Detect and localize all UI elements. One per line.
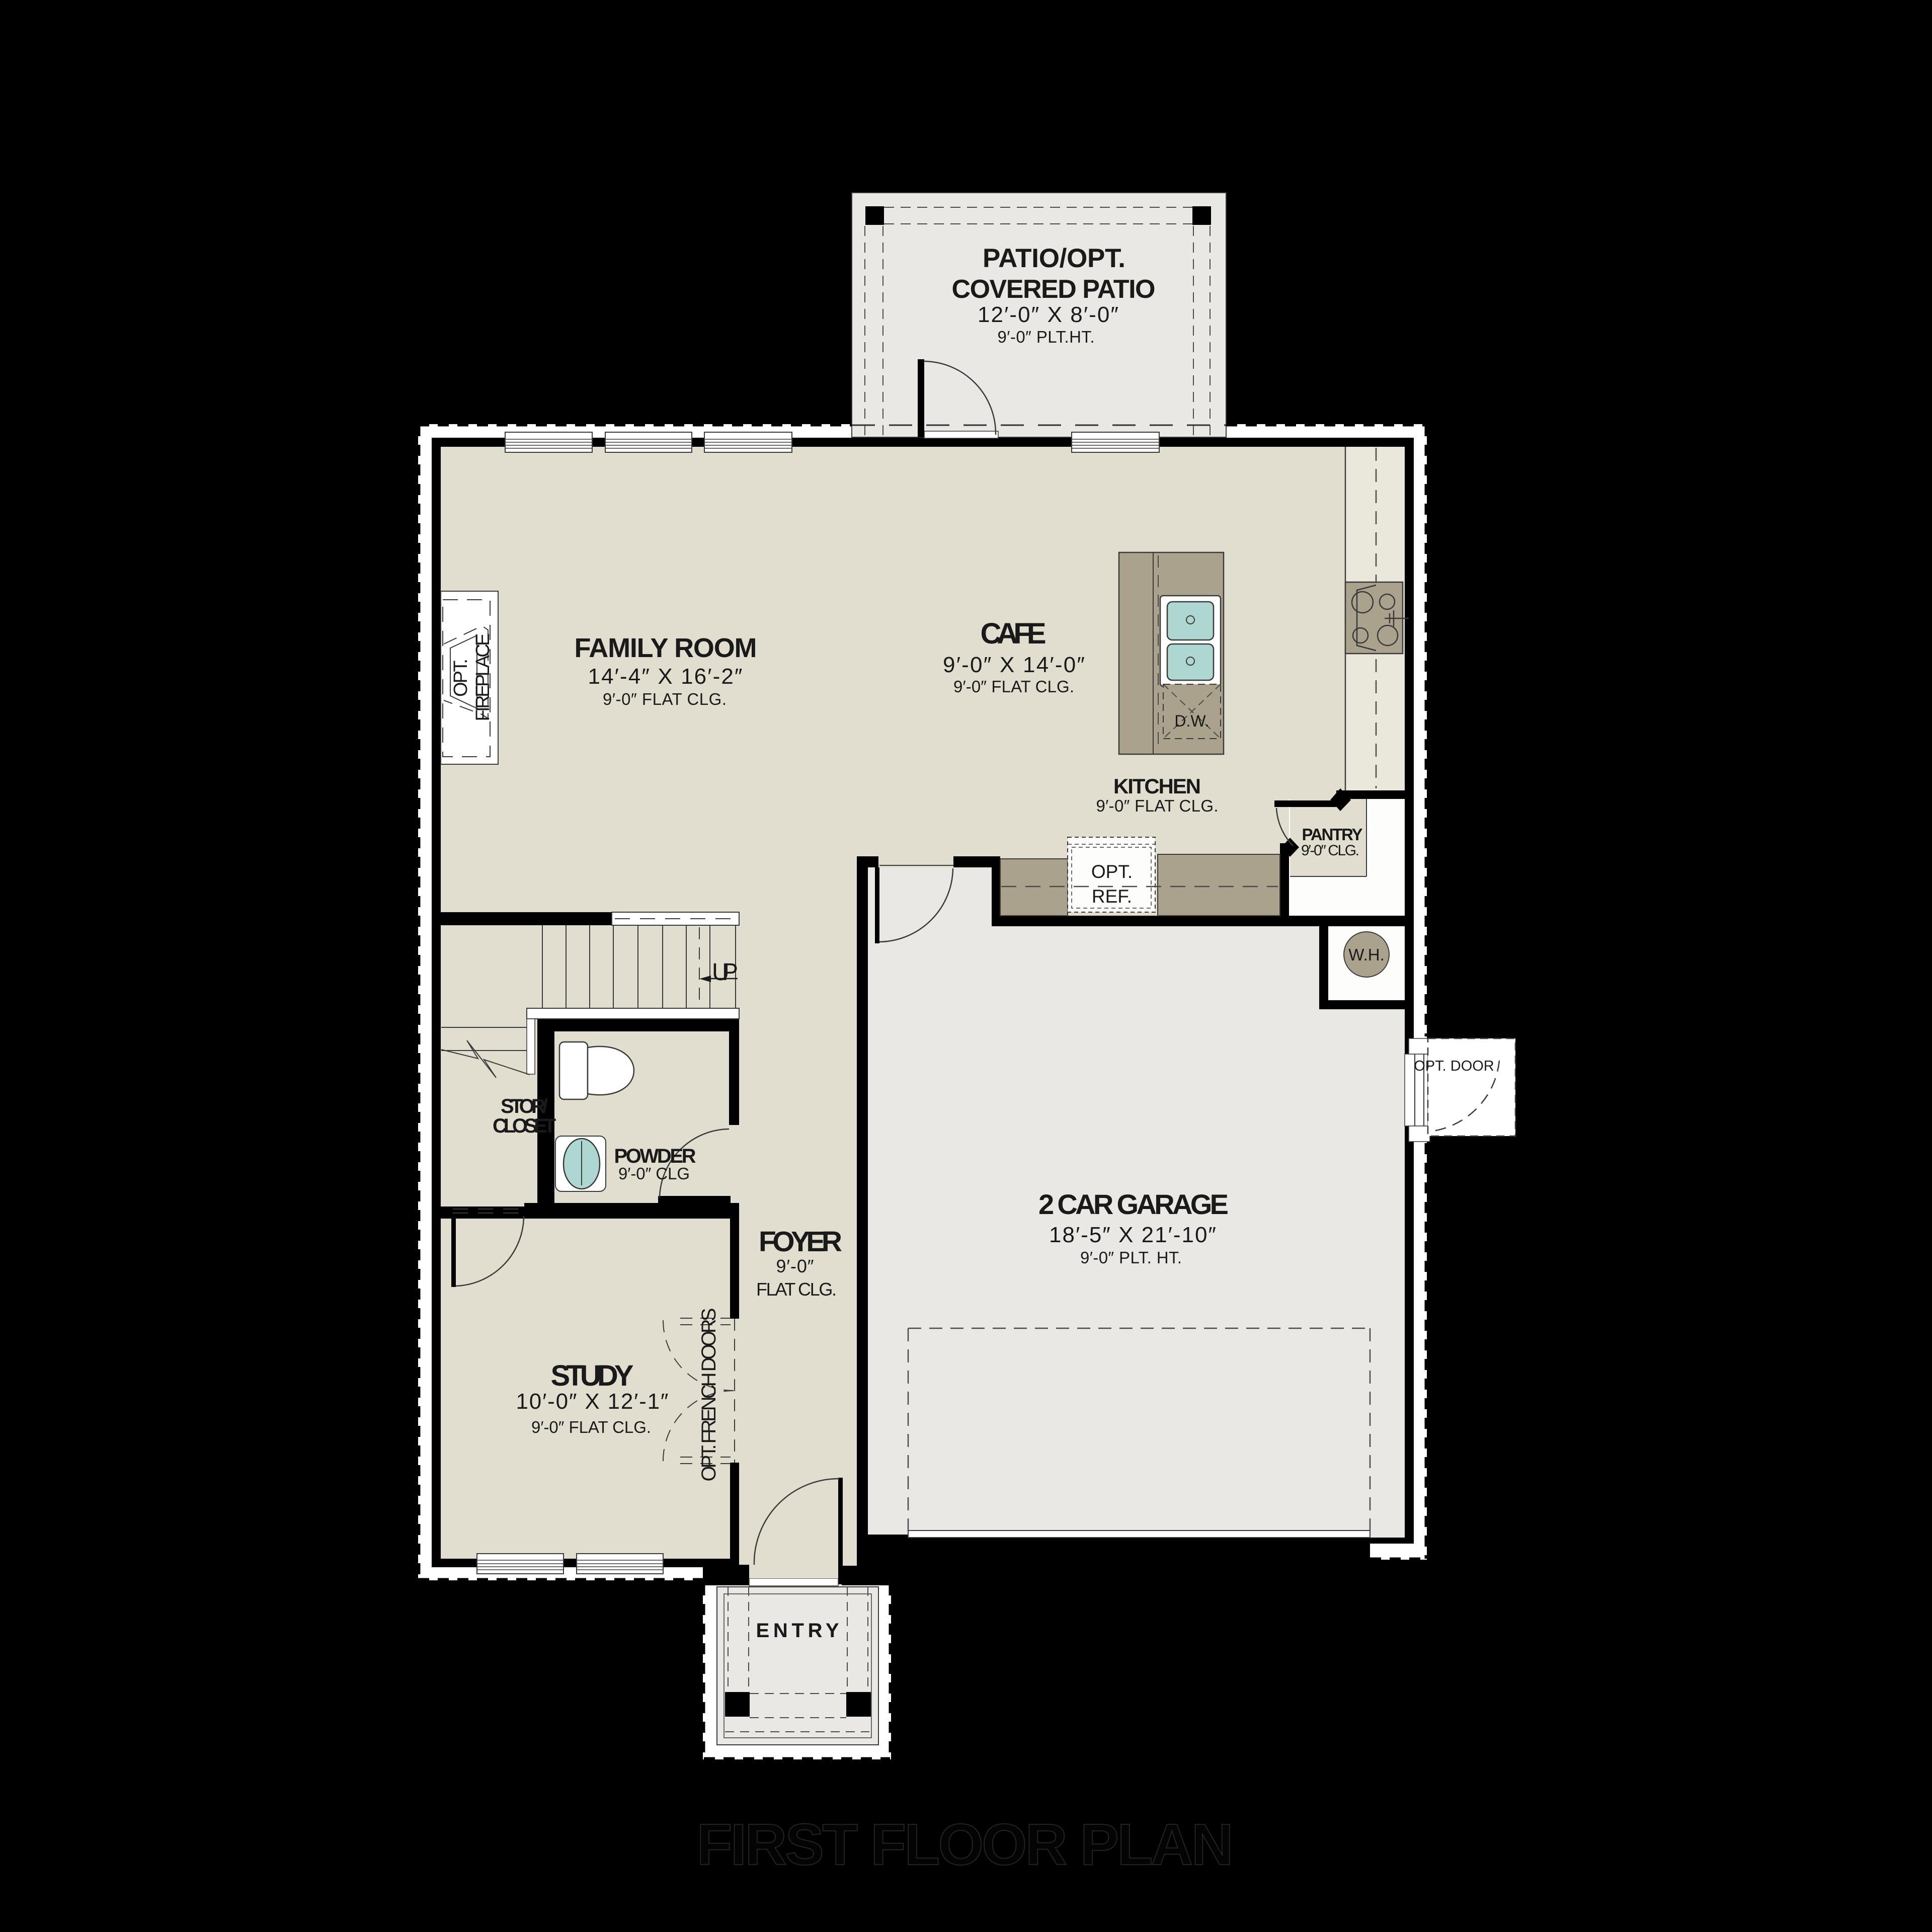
svg-text:CLOSET: CLOSET <box>493 1115 556 1137</box>
svg-text:9′-0″ CLG: 9′-0″ CLG <box>618 1164 690 1183</box>
svg-text:9′-0″ FLAT CLG.: 9′-0″ FLAT CLG. <box>603 690 727 708</box>
svg-text:STOR/: STOR/ <box>501 1095 548 1117</box>
svg-text:CAFE: CAFE <box>981 617 1046 650</box>
svg-text:OPT.: OPT. <box>1091 861 1133 882</box>
svg-text:D.W.: D.W. <box>1174 712 1209 730</box>
svg-text:OPT.: OPT. <box>450 659 471 697</box>
svg-text:9′-0″ FLAT CLG.: 9′-0″ FLAT CLG. <box>1096 796 1219 815</box>
svg-text:9′-0″ PLT.HT.: 9′-0″ PLT.HT. <box>998 328 1095 346</box>
svg-text:OPT. DOOR: OPT. DOOR <box>1414 1058 1494 1074</box>
svg-text:9′-0″ PLT. HT.: 9′-0″ PLT. HT. <box>1080 1248 1182 1267</box>
svg-text:OPT. FRENCH DOORS: OPT. FRENCH DOORS <box>698 1308 720 1482</box>
svg-text:FLAT CLG.: FLAT CLG. <box>756 1279 837 1300</box>
svg-text:FOYER: FOYER <box>759 1226 842 1258</box>
svg-text:10′-0″ X 12′-1″: 10′-0″ X 12′-1″ <box>516 1389 669 1414</box>
svg-text:PANTRY: PANTRY <box>1302 825 1363 844</box>
svg-text:9′-0″ X 14′-0″: 9′-0″ X 14′-0″ <box>943 653 1085 677</box>
svg-text:PATIO/OPT.: PATIO/OPT. <box>983 244 1125 273</box>
svg-text:W.H.: W.H. <box>1348 945 1385 964</box>
svg-text:9′-0″ FLAT CLG.: 9′-0″ FLAT CLG. <box>531 1418 651 1436</box>
svg-text:FAMILY ROOM: FAMILY ROOM <box>575 633 757 663</box>
svg-text:18′-5″ X 21′-10″: 18′-5″ X 21′-10″ <box>1049 1223 1216 1247</box>
svg-text:KITCHEN: KITCHEN <box>1113 774 1201 798</box>
svg-text:FIREPLACE: FIREPLACE <box>472 633 494 721</box>
svg-text:9′-0″ CLG.: 9′-0″ CLG. <box>1301 842 1359 859</box>
svg-text:STUDY: STUDY <box>551 1359 634 1392</box>
svg-text:14′-4″ X 16′-2″: 14′-4″ X 16′-2″ <box>588 664 743 689</box>
svg-text:12′-0″ X 8′-0″: 12′-0″ X 8′-0″ <box>978 302 1118 327</box>
svg-text:UP: UP <box>712 959 738 986</box>
svg-text:2 CAR GARAGE: 2 CAR GARAGE <box>1038 1188 1229 1220</box>
svg-text:9′-0″: 9′-0″ <box>776 1256 814 1276</box>
svg-text:9′-0″ FLAT CLG.: 9′-0″ FLAT CLG. <box>953 677 1074 696</box>
svg-text:ENTRY: ENTRY <box>756 1620 839 1642</box>
svg-text:FIRST FLOOR PLAN: FIRST FLOOR PLAN <box>697 1812 1239 1877</box>
svg-text:COVERED PATIO: COVERED PATIO <box>952 275 1156 304</box>
svg-text:REF.: REF. <box>1092 886 1132 907</box>
